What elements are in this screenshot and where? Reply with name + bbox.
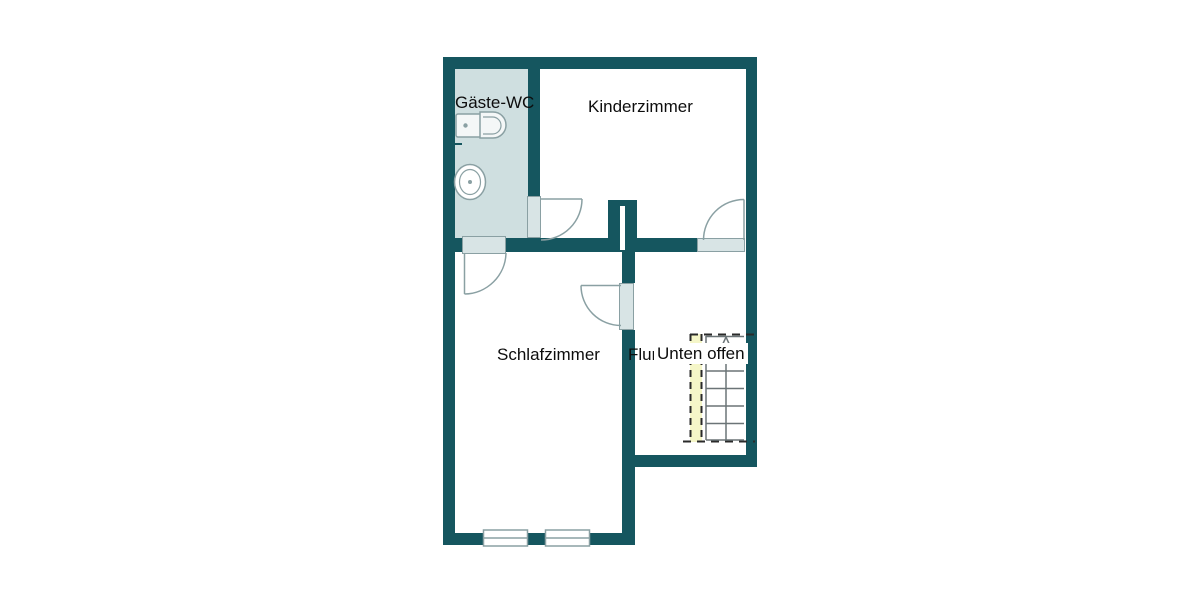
chimney-slot [620, 206, 625, 250]
label-schlafzimmer: Schlafzimmer [497, 345, 600, 364]
wall-top [443, 57, 757, 69]
wall-wc-right [528, 69, 540, 198]
wall-left [443, 57, 455, 545]
door-schlafzimmer-flur [619, 283, 634, 330]
label-kinderzimmer: Kinderzimmer [588, 97, 693, 116]
label-gaeste-wc: Gäste-WC [455, 93, 534, 112]
room-schlafzimmer [455, 252, 622, 533]
label-flur: Flur [628, 345, 657, 364]
room-kinderzimmer [540, 69, 746, 238]
wall-flur-upper [622, 252, 635, 283]
wall-flur-bottom [622, 455, 757, 467]
wall-divider-mid [506, 238, 698, 252]
door-wc-schlafzimmer [462, 236, 506, 254]
label-unten-offen: Unten offen [654, 343, 748, 364]
wall-schlafzimmer-bottom [443, 533, 635, 545]
wall-right [746, 57, 757, 467]
door-kinderzimmer-flur [697, 238, 745, 252]
floor-plan: Gäste-WC Kinderzimmer Schlafzimmer Flur … [0, 0, 1200, 600]
door-wc-kinderzimmer [527, 196, 541, 238]
